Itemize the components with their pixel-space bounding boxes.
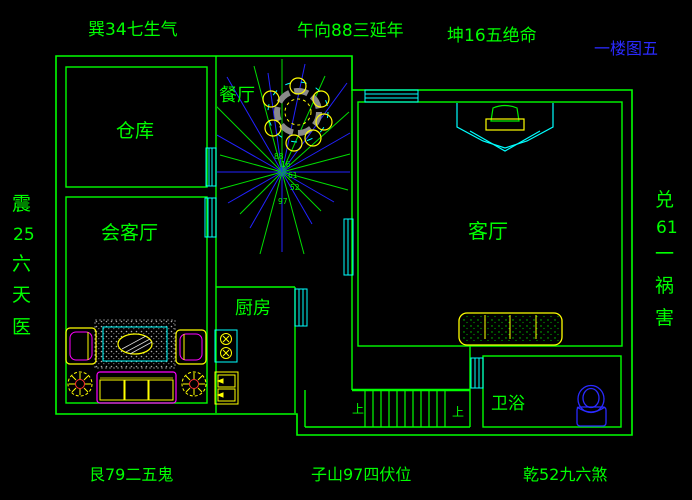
compass-number: 61 bbox=[288, 171, 298, 180]
tv-unit bbox=[486, 106, 524, 131]
tv-niche bbox=[457, 103, 553, 151]
fengshui-label-top-left: 巽34七生气 bbox=[88, 20, 178, 40]
toilet bbox=[577, 386, 606, 427]
door-kitchen-icon bbox=[295, 289, 307, 326]
floorplan-canvas: 88 16 61 52 97 bbox=[0, 0, 692, 500]
room-bath-walls bbox=[483, 356, 621, 427]
compass-number: 52 bbox=[290, 183, 300, 192]
sheet-title: 一楼图五 bbox=[594, 39, 658, 58]
fengshui-right-char: 一 bbox=[655, 243, 674, 265]
fengshui-left-char: 天 bbox=[12, 284, 31, 306]
doors-windows bbox=[205, 90, 483, 388]
sofa-three-seat bbox=[97, 372, 176, 403]
fengshui-right-char: 兑 bbox=[655, 189, 674, 211]
fengshui-left-char: 六 bbox=[12, 253, 31, 275]
fengshui-left-char: 25 bbox=[13, 225, 35, 245]
fengshui-label-left-column: 震 25 六 天 医 bbox=[12, 193, 35, 338]
fengshui-label-bottom-left: 艮79二五鬼 bbox=[89, 465, 173, 484]
floorplan-drawing: 88 16 61 52 97 bbox=[0, 0, 692, 500]
fengshui-label-bottom-right: 乾52九六煞 bbox=[523, 465, 607, 484]
fengshui-left-char: 震 bbox=[12, 193, 31, 215]
sofa-four-seat bbox=[459, 313, 562, 345]
door-bathroom-icon bbox=[471, 358, 483, 388]
fengshui-label-top-right: 坤16五绝命 bbox=[447, 26, 537, 46]
room-label-storage: 仓库 bbox=[116, 120, 154, 142]
fengshui-label-top-center: 午向88三延年 bbox=[297, 21, 404, 41]
room-label-living: 客厅 bbox=[468, 219, 508, 243]
stairs-up-label-right: 上 bbox=[452, 405, 464, 419]
fengshui-label-right-column: 兑 61 一 祸 害 bbox=[655, 189, 678, 329]
reception-rug bbox=[95, 320, 175, 368]
room-label-reception: 会客厅 bbox=[101, 222, 158, 244]
room-label-bathroom: 卫浴 bbox=[491, 394, 525, 414]
plant-stand-right bbox=[182, 372, 206, 396]
room-label-kitchen: 厨房 bbox=[235, 298, 271, 319]
armchair-right bbox=[176, 330, 206, 364]
kitchen-stove bbox=[215, 330, 237, 362]
kitchen-sink bbox=[215, 372, 238, 404]
fengshui-left-char: 医 bbox=[12, 316, 31, 338]
fengshui-right-char: 害 bbox=[655, 307, 674, 329]
armchair-left bbox=[66, 328, 96, 364]
compass-number: 16 bbox=[281, 160, 291, 169]
compass-number: 97 bbox=[278, 197, 288, 206]
stairs-up-label-left: 上 bbox=[352, 402, 364, 416]
window-living-top-icon bbox=[365, 90, 418, 102]
room-label-dining: 餐厅 bbox=[219, 85, 255, 106]
fengshui-right-char: 祸 bbox=[655, 275, 674, 297]
fengshui-label-bottom-center: 子山97四伏位 bbox=[311, 465, 411, 484]
fengshui-right-char: 61 bbox=[656, 218, 678, 238]
plant-stand-left bbox=[68, 372, 92, 396]
